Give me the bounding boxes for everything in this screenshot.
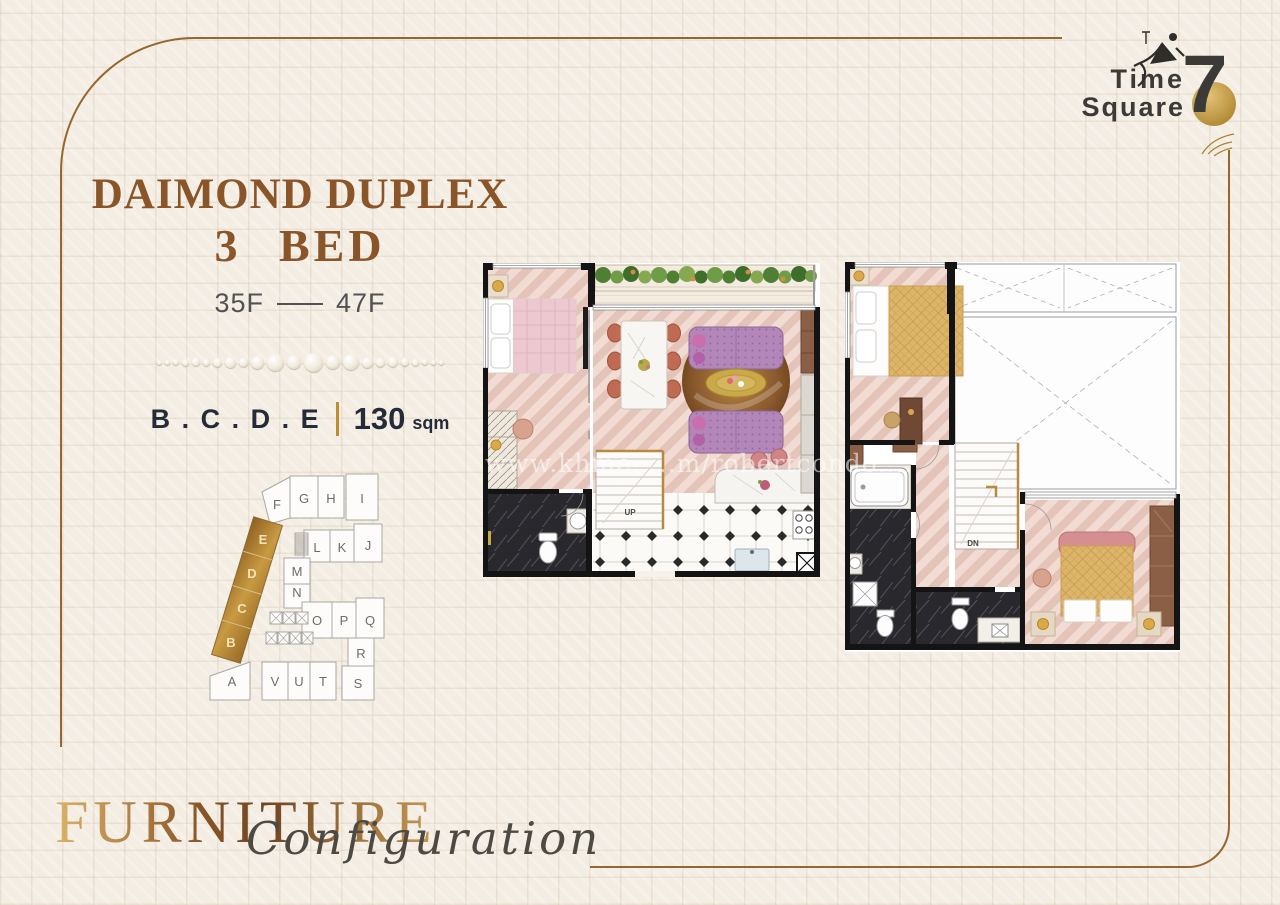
svg-text:F: F	[273, 497, 281, 512]
footer-configuration-script: Configuration	[246, 812, 601, 865]
page-subtitle: 3 BED	[80, 219, 520, 272]
floor-to: 47F	[336, 288, 386, 319]
tv-panel	[583, 307, 588, 369]
floor-plan-lower: UP	[483, 263, 820, 577]
unit-letters: B . C . D . E	[151, 404, 321, 435]
svg-text:G: G	[299, 491, 309, 506]
svg-text:O: O	[312, 613, 322, 628]
unit-label-c: C	[237, 601, 247, 616]
svg-text:Q: Q	[365, 613, 375, 628]
time-square-7-logo: Time Square 7	[1040, 40, 1260, 170]
svg-text:T: T	[319, 674, 327, 689]
dancer-illustration	[1132, 28, 1192, 92]
building-key-plan: E D C B FG HI LK J MN OP Q R AV UT S	[198, 462, 428, 712]
living-set	[682, 327, 790, 468]
svg-text:P: P	[340, 613, 349, 628]
brochure-page: Time Square 7 DAIMOND DUPLEX 3 BED 35F 4…	[0, 0, 1280, 905]
svg-text:N: N	[292, 585, 301, 600]
svg-text:K: K	[338, 540, 347, 555]
svg-text:R: R	[356, 646, 365, 661]
svg-text:L: L	[313, 540, 320, 555]
stair-label-up: UP	[624, 508, 636, 517]
pearl-divider	[80, 351, 520, 373]
svg-text:H: H	[326, 491, 335, 506]
unit-area-line: B . C . D . E 130 sqm	[80, 401, 520, 437]
stair-label-down: DN	[967, 539, 979, 548]
svg-text:V: V	[271, 674, 280, 689]
header-block: DAIMOND DUPLEX 3 BED 35F 47F B . C . D .…	[80, 172, 520, 437]
svg-text:M: M	[292, 564, 303, 579]
svg-text:A: A	[228, 674, 237, 689]
floor-range-dash	[277, 303, 323, 305]
area-value: 130	[354, 401, 406, 437]
svg-text:J: J	[365, 538, 372, 553]
staircase-down: DN	[955, 443, 1018, 549]
gold-leaf-ornament	[1198, 128, 1238, 158]
unit-label-e: E	[259, 532, 268, 547]
unit-label-d: D	[247, 566, 256, 581]
svg-text:S: S	[354, 676, 363, 691]
page-title: DAIMOND DUPLEX	[80, 172, 520, 217]
floor-from: 35F	[214, 288, 264, 319]
floor-range: 35F 47F	[80, 288, 520, 319]
gold-divider-bar	[336, 402, 339, 436]
logo-word-square: Square	[1040, 92, 1185, 123]
svg-text:U: U	[294, 674, 303, 689]
corridor-floor-2	[955, 549, 1020, 587]
bathroom2	[915, 592, 1020, 644]
void-balcony	[953, 264, 1176, 312]
unit-label-b: B	[226, 635, 235, 650]
watermark-text: www.khme.....m/robertcondo....	[485, 449, 935, 478]
area-unit: sqm	[412, 405, 449, 434]
svg-text:I: I	[360, 491, 364, 506]
dining-set	[608, 321, 681, 409]
bathroom1	[848, 465, 911, 644]
